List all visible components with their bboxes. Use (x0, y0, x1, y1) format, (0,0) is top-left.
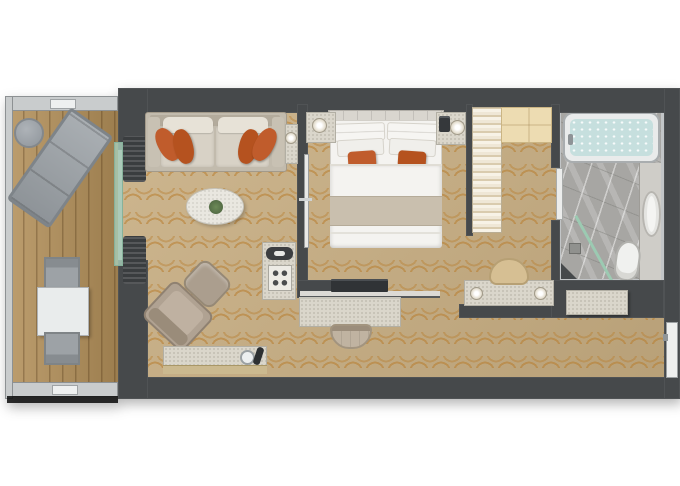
bathtub-faucet (568, 134, 573, 145)
sofa-back-cushion (218, 117, 268, 133)
table-lamp (285, 132, 297, 144)
wall-vanity (459, 304, 560, 318)
bedroom-sliding-door (304, 154, 309, 248)
suite-plan (0, 0, 680, 486)
hallway-console (566, 290, 628, 315)
balcony-glass-door (114, 142, 123, 266)
curtain-bottom (123, 236, 146, 284)
table-plant (209, 200, 223, 214)
washbasin (642, 191, 661, 237)
wall-bottom (118, 377, 680, 399)
coffee-table (186, 188, 244, 225)
bathroom-floor (558, 104, 664, 282)
curtain-top (123, 136, 146, 182)
tv (331, 279, 388, 292)
sofa (145, 112, 287, 172)
bed-runner (330, 196, 442, 226)
balcony-railing-left (5, 96, 13, 399)
bathroom-door (556, 168, 563, 220)
bathtub-water (570, 119, 653, 156)
entry-door-handle (663, 334, 668, 341)
duvet-fold (330, 232, 442, 234)
floor-plan (0, 0, 680, 486)
balcony-shadow (7, 396, 118, 403)
closet-hanging-rail (472, 107, 502, 233)
shower-drain (569, 243, 581, 254)
sideboard-front (163, 365, 267, 374)
railing-segment (52, 385, 78, 395)
wall-bathroom-left-lower (551, 220, 560, 282)
telephone (439, 116, 450, 132)
sofa-back-cushion (163, 117, 213, 133)
balcony-chair-south (44, 332, 80, 365)
vanity-lamp (470, 287, 483, 300)
balcony-dining-table (37, 287, 89, 336)
bathroom-corner-wall (561, 263, 577, 279)
entry-door (666, 322, 678, 378)
closet-shelves (501, 107, 552, 143)
minibar-cabinet (262, 242, 296, 300)
wall-bathroom-left-upper (551, 104, 560, 168)
desk (299, 297, 401, 327)
round-side-table (14, 118, 44, 148)
sliding-door-handle (299, 198, 312, 201)
vanity-lamp (534, 287, 547, 300)
cup-tray (268, 265, 292, 291)
nightstand-lamp (450, 120, 465, 135)
sofa-side-table (285, 124, 298, 164)
nightstand-lamp (312, 118, 327, 133)
serving-tray (266, 247, 293, 260)
balcony-chair-north (44, 257, 80, 290)
bathtub (563, 112, 660, 163)
